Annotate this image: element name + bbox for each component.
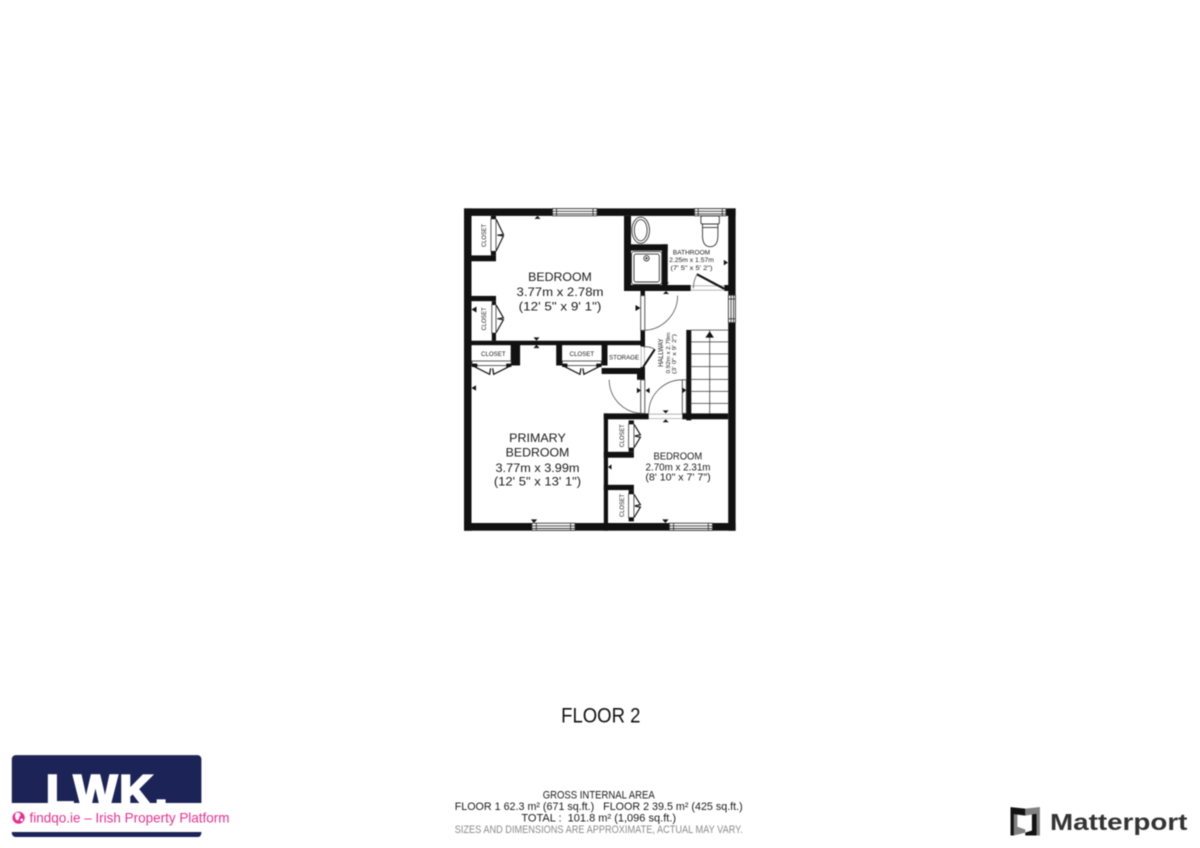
svg-text:BEDROOM: BEDROOM (506, 445, 570, 459)
svg-text:3.77m x 3.99m: 3.77m x 3.99m (496, 461, 580, 475)
svg-text:GROSS INTERNAL AREA: GROSS INTERNAL AREA (543, 790, 656, 802)
svg-text:BATHROOM: BATHROOM (673, 250, 711, 257)
svg-text:CLOSET: CLOSET (619, 494, 626, 517)
svg-text:Matterport: Matterport (1050, 809, 1188, 835)
svg-text:PRIMARY: PRIMARY (509, 431, 566, 445)
svg-text:(12' 5" x 13' 1"): (12' 5" x 13' 1") (494, 474, 581, 488)
svg-text:SIZES AND DIMENSIONS ARE APPRO: SIZES AND DIMENSIONS ARE APPROXIMATE, AC… (455, 824, 743, 836)
svg-text:(3' 0" x 9' 2"): (3' 0" x 9' 2") (672, 334, 678, 374)
svg-text:(8' 10" x 7' 7"): (8' 10" x 7' 7") (645, 473, 710, 484)
svg-text:HALLWAY: HALLWAY (656, 338, 665, 367)
svg-text:(12' 5" x 9' 1"): (12' 5" x 9' 1") (519, 300, 602, 314)
svg-text:CLOSET: CLOSET (481, 307, 488, 330)
svg-text:BEDROOM: BEDROOM (654, 451, 703, 462)
svg-text:FLOOR 2: FLOOR 2 (561, 704, 640, 727)
svg-text:CLOSET: CLOSET (619, 424, 626, 447)
svg-text:CLOSET: CLOSET (481, 351, 506, 358)
svg-text:FLOOR 1 62.3 m² (671 sq.ft.): FLOOR 1 62.3 m² (671 sq.ft.) FLOOR 2 39.… (455, 801, 743, 813)
svg-text:BEDROOM: BEDROOM (528, 270, 592, 284)
svg-text:CLOSET: CLOSET (481, 224, 488, 247)
svg-text:(7' 5" x 5' 2"): (7' 5" x 5' 2") (671, 265, 713, 272)
svg-text:TOTAL : 101.8 m² (1,096 sq.ft: TOTAL : 101.8 m² (1,096 sq.ft.) (521, 813, 676, 825)
svg-text:3.77m x 2.78m: 3.77m x 2.78m (517, 285, 604, 299)
svg-text:CLOSET: CLOSET (570, 351, 595, 358)
svg-text:2.25m x 1.57m: 2.25m x 1.57m (669, 257, 714, 264)
svg-text:STORAGE: STORAGE (609, 354, 639, 361)
svg-text:findqo.ie – Irish Property Pla: findqo.ie – Irish Property Platform (30, 810, 230, 826)
